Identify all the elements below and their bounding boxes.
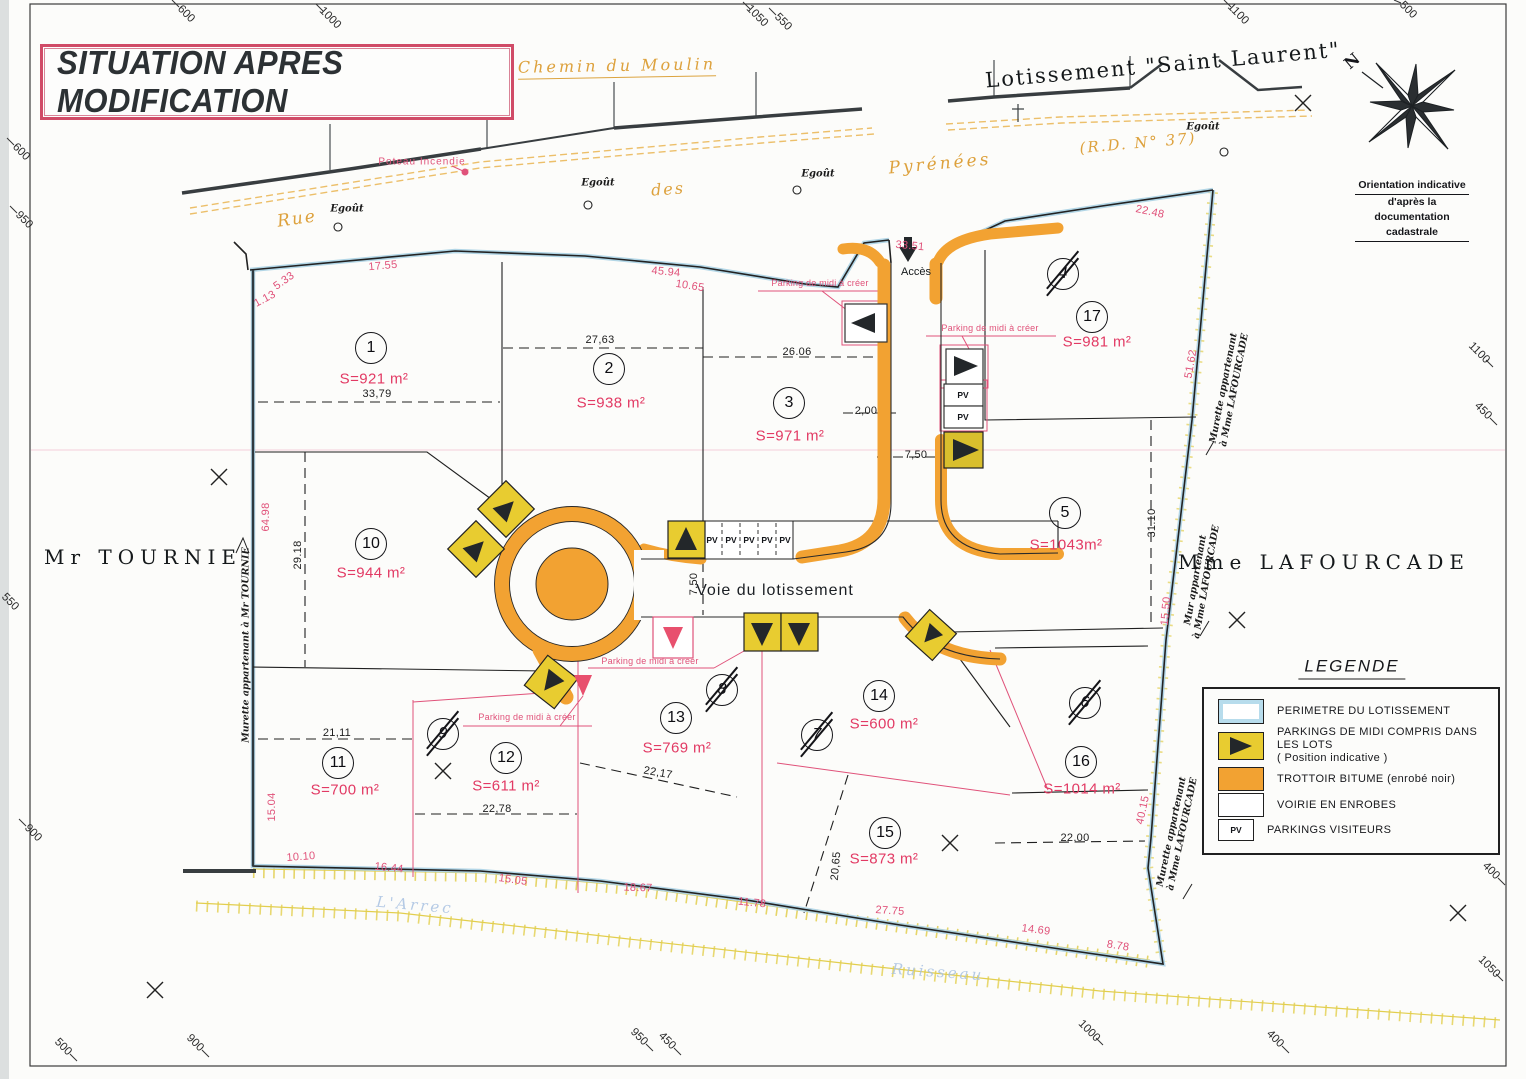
legend-label: VOIRIE EN ENROBES — [1277, 799, 1396, 812]
lot-13-number: 13 — [660, 702, 692, 734]
lot-17-number: 17 — [1076, 301, 1108, 333]
lot-12-number: 12 — [490, 742, 522, 774]
lot-13-area: S=769 m² — [643, 740, 712, 757]
lot-2-number: 2 — [593, 353, 625, 385]
triangle-right-icon — [1230, 737, 1252, 755]
acces-label: Accès — [901, 266, 931, 278]
lot-11-number: 11 — [322, 747, 354, 779]
wall-label-tournie: Murette appartenant à Mr TOURNIE — [241, 547, 252, 742]
deleted-lot-6: 6 — [1069, 687, 1101, 719]
compass-caption-line1: Orientation indicative — [1355, 178, 1469, 195]
dim: 45.94 — [651, 265, 681, 279]
parking-midi-label: Parking de midi à créer — [941, 323, 1038, 333]
dim: 33,79 — [362, 388, 391, 400]
legend-item-voirie: VOIRIE EN ENROBES — [1218, 793, 1490, 817]
lot-14-number: 14 — [863, 680, 895, 712]
lot-15-area: S=873 m² — [850, 851, 919, 868]
parking-midi-label: Parking de midi à créer — [478, 712, 575, 722]
legend-label: PERIMETRE DU LOTISSEMENT — [1277, 705, 1450, 718]
legend-swatch-pv: PV — [1218, 819, 1254, 841]
pv-cell-label: PV — [779, 535, 790, 545]
egout-label: Egoût — [801, 169, 834, 180]
dim: 27.75 — [875, 904, 905, 918]
dim: 10.10 — [286, 850, 316, 864]
owner-lafourcade: Mme LAFOURCADE — [1178, 550, 1470, 574]
street-des: des — [650, 178, 685, 199]
egout-label: Egoût — [581, 178, 614, 189]
dim: 2,00 — [855, 405, 878, 417]
dim: 17.55 — [368, 259, 398, 273]
poteau-incendie-label: Poteau Incendie — [378, 157, 465, 168]
dim: 29.18 — [292, 540, 304, 569]
egout-label: Egoût — [1186, 122, 1219, 133]
street-chemin-du-moulin: Chemin du Moulin — [518, 54, 717, 79]
legend-label: TROTTOIR BITUME (enrobé noir) — [1277, 773, 1455, 786]
deleted-lot-8: 8 — [706, 674, 738, 706]
lot-11-area: S=700 m² — [311, 782, 380, 799]
parking-midi-label: Parking de midi à créer — [771, 278, 868, 288]
dim: 15.04 — [266, 792, 278, 821]
roundabout-island — [536, 548, 608, 620]
pv-box-label: PV — [957, 412, 968, 422]
dim: 22,00 — [1060, 832, 1089, 844]
legend-swatch-parking-midi — [1218, 732, 1264, 760]
lot-5-area: S=1043m² — [1030, 537, 1103, 554]
cadastral-plan: SITUATION APRES MODIFICATION Chemin du M… — [0, 0, 1526, 1079]
dim: 27,63 — [585, 334, 614, 346]
scan-edge — [0, 0, 9, 1079]
pv-box-label: PV — [957, 390, 968, 400]
deleted-lot-9: 9 — [427, 718, 459, 750]
legend-label: PARKINGS VISITEURS — [1267, 824, 1391, 837]
legend-title: LEGENDE — [1298, 657, 1405, 680]
dim: 31.10 — [1146, 508, 1158, 537]
dim: 18.67 — [623, 881, 652, 894]
legend-label: PARKINGS DE MIDI COMPRIS DANS LES LOTS( … — [1277, 726, 1490, 765]
lot-14-area: S=600 m² — [850, 716, 919, 733]
lot-15-number: 15 — [869, 817, 901, 849]
pv-cell-label: PV — [725, 535, 736, 545]
lot-3-number: 3 — [773, 387, 805, 419]
legend-swatch-perimeter — [1218, 699, 1264, 724]
fire-hydrant-icon — [462, 169, 469, 176]
dim: 33.51 — [895, 239, 925, 253]
lot-3-area: S=971 m² — [756, 428, 825, 445]
lot-16-area: S=1014 m² — [1043, 781, 1120, 798]
page-title: SITUATION APRES MODIFICATION — [57, 44, 497, 120]
lot-1-number: 1 — [355, 332, 387, 364]
legend-box: PERIMETRE DU LOTISSEMENT PARKINGS DE MID… — [1202, 687, 1500, 855]
lot-1-area: S=921 m² — [340, 371, 409, 388]
dim: 64.98 — [260, 502, 272, 531]
legend-item-trottoir: TROTTOIR BITUME (enrobé noir) — [1218, 767, 1490, 791]
dim: 7,50 — [688, 573, 700, 596]
dim: 7,50 — [905, 449, 928, 461]
legend-item-parking-midi: PARKINGS DE MIDI COMPRIS DANS LES LOTS( … — [1218, 726, 1490, 765]
legend-item-pv: PV PARKINGS VISITEURS — [1218, 819, 1490, 841]
dim: 22,78 — [482, 803, 511, 815]
lot-17-area: S=981 m² — [1063, 334, 1132, 351]
dim: 21,11 — [323, 727, 351, 739]
compass-caption: Orientation indicative d'après la docume… — [1355, 178, 1469, 242]
pv-cell-label: PV — [706, 535, 717, 545]
dim: 20,65 — [829, 851, 843, 881]
pv-cell-label: PV — [743, 535, 754, 545]
lot-10-area: S=944 m² — [337, 565, 406, 582]
lot-12-area: S=611 m² — [472, 778, 540, 795]
deleted-lot-7: 7 — [801, 719, 833, 751]
legend-swatch-trottoir — [1218, 767, 1264, 791]
deleted-lot-4: 4 — [1047, 258, 1079, 290]
parking-midi-label: Parking de midi à créer — [601, 656, 698, 666]
egout-label: Egoût — [330, 204, 363, 215]
lot-10-number: 10 — [355, 528, 387, 560]
legend-swatch-voirie — [1218, 793, 1264, 817]
owner-tournie: Mr TOURNIE — [44, 545, 242, 569]
dim: 15.50 — [1159, 596, 1173, 626]
lot-2-area: S=938 m² — [577, 395, 646, 412]
dim: 26.06 — [782, 346, 811, 358]
pv-cell-label: PV — [761, 535, 772, 545]
legend-item-perimeter: PERIMETRE DU LOTISSEMENT — [1218, 699, 1490, 724]
street-voie-lotissement: Voie du lotissement — [696, 582, 854, 600]
lot-16-number: 16 — [1065, 746, 1097, 778]
title-box: SITUATION APRES MODIFICATION — [40, 44, 514, 120]
compass-caption-line2: d'après la documentation cadastrale — [1355, 195, 1469, 242]
lot-5-number: 5 — [1049, 497, 1081, 529]
